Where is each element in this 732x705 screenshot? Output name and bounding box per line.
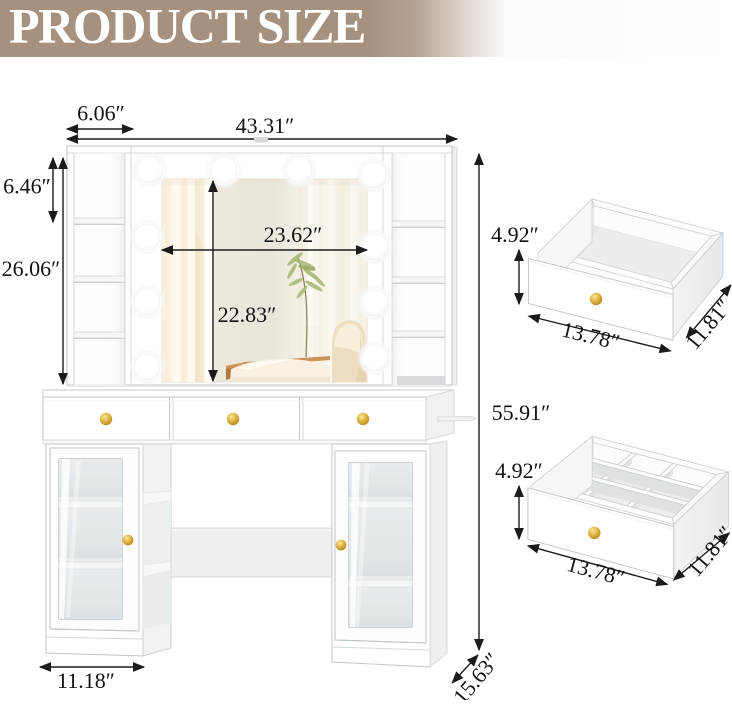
svg-text:4.92″: 4.92″ — [491, 222, 539, 247]
svg-text:43.31″: 43.31″ — [236, 113, 295, 138]
svg-text:6.06″: 6.06″ — [77, 101, 125, 126]
svg-text:6.46″: 6.46″ — [3, 174, 51, 199]
svg-text:26.06″: 26.06″ — [2, 256, 61, 281]
svg-text:4.92″: 4.92″ — [495, 458, 543, 483]
svg-text:PRODUCT SIZE: PRODUCT SIZE — [9, 0, 365, 54]
svg-text:23.62″: 23.62″ — [264, 222, 323, 247]
svg-text:11.18″: 11.18″ — [57, 668, 115, 693]
svg-text:22.83″: 22.83″ — [218, 302, 277, 327]
svg-text:55.91″: 55.91″ — [492, 400, 551, 425]
